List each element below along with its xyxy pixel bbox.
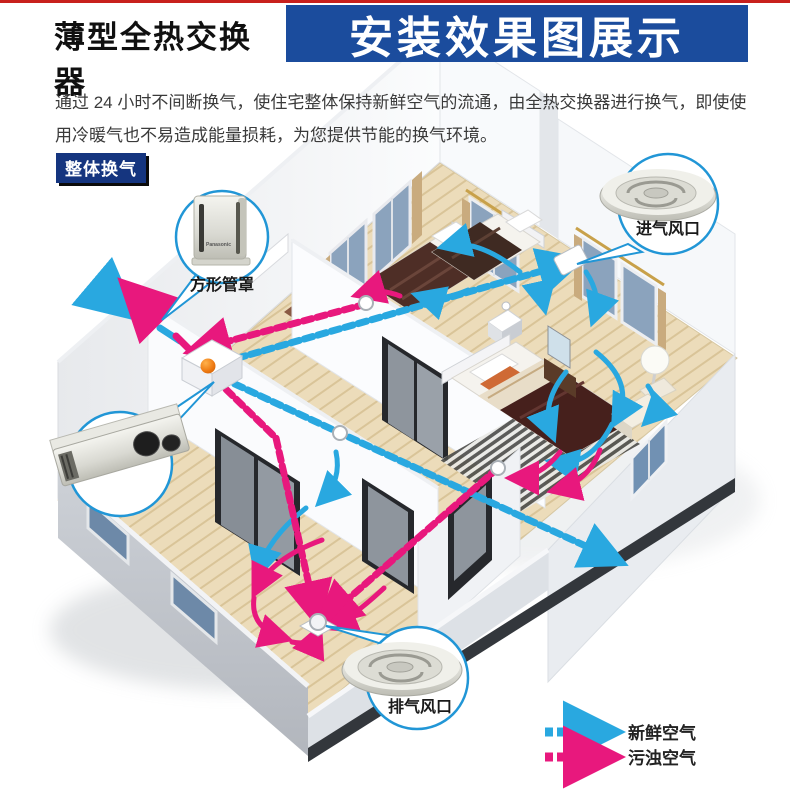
legend-polluted-air: 污浊空气 bbox=[545, 748, 696, 768]
intake-vent-product bbox=[600, 169, 716, 221]
page: Panasonic 方形管罩 bbox=[0, 0, 790, 801]
flow-legend: 新鲜空气 污浊空气 bbox=[545, 723, 696, 768]
orange-indicator bbox=[201, 359, 216, 374]
banner-title: 安装效果图展示 bbox=[349, 2, 685, 66]
floor-node bbox=[491, 461, 505, 475]
intake-vent-label: 进气风口 bbox=[636, 219, 700, 238]
square-duct-cover-product: Panasonic bbox=[192, 196, 250, 265]
section-badge: 整体换气 bbox=[56, 153, 146, 183]
brand-label: Panasonic bbox=[206, 242, 231, 248]
fresh-air-label: 新鲜空气 bbox=[628, 723, 696, 743]
legend-fresh-air: 新鲜空气 bbox=[545, 723, 696, 743]
intro-paragraph: 通过 24 小时不间断换气，使住宅整体保持新鲜空气的流通，由全热交换器进行换气，… bbox=[55, 86, 747, 152]
banner: 安装效果图展示 bbox=[286, 5, 748, 62]
curtain bbox=[412, 171, 422, 244]
polluted-air-label: 污浊空气 bbox=[628, 748, 696, 768]
exhaust-vent-product bbox=[342, 642, 462, 696]
exhaust-vent-label: 排气风口 bbox=[388, 697, 452, 716]
square-duct-cover-label: 方形管罩 bbox=[190, 275, 254, 294]
ceiling-node bbox=[359, 296, 373, 310]
ceiling-node bbox=[333, 426, 347, 440]
